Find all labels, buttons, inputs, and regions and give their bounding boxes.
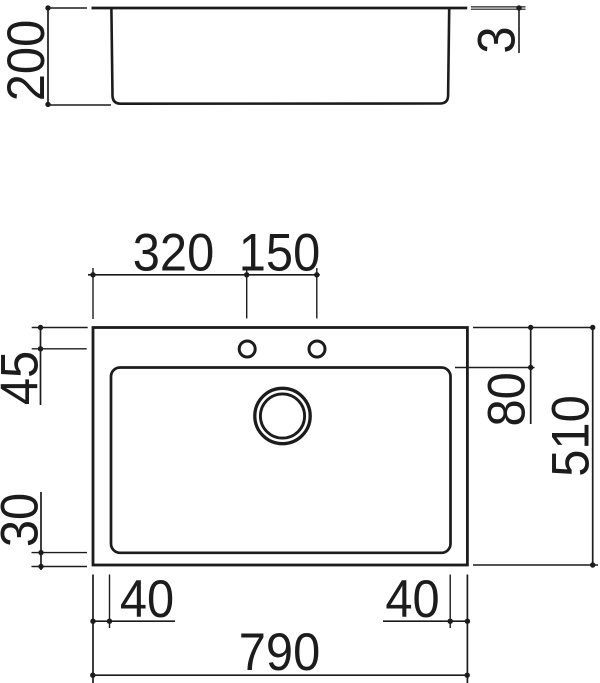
svg-text:80: 80 xyxy=(477,372,536,426)
svg-text:40: 40 xyxy=(385,569,439,628)
svg-text:200: 200 xyxy=(0,20,55,101)
svg-text:40: 40 xyxy=(120,569,174,628)
svg-text:320: 320 xyxy=(133,223,214,282)
svg-text:790: 790 xyxy=(239,622,320,681)
svg-text:30: 30 xyxy=(0,493,49,547)
svg-text:510: 510 xyxy=(541,395,600,476)
svg-text:150: 150 xyxy=(239,223,320,282)
svg-text:45: 45 xyxy=(0,351,49,405)
svg-text:3: 3 xyxy=(467,26,526,53)
